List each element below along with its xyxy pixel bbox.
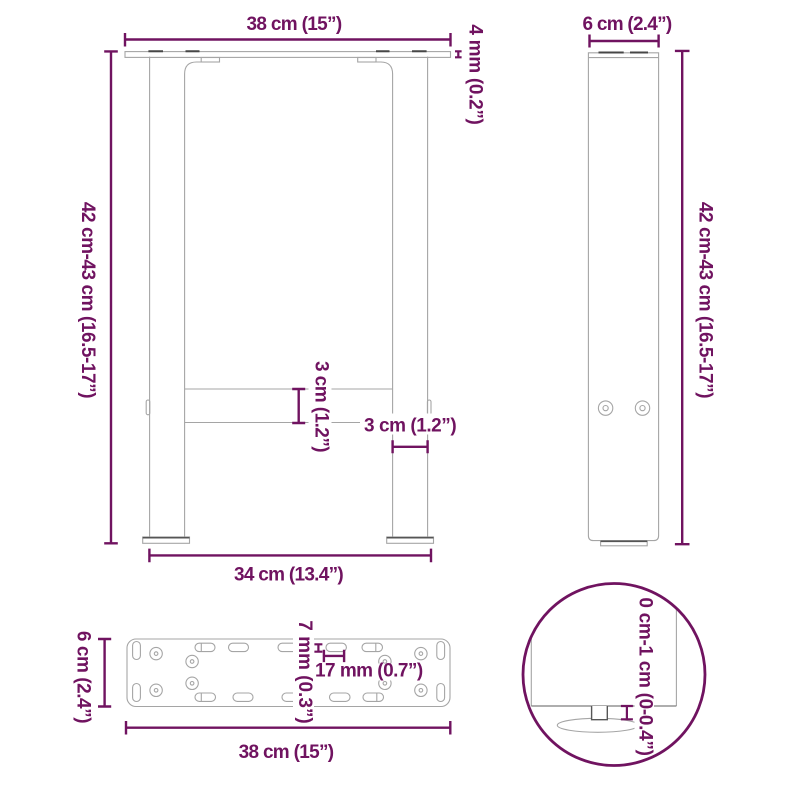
svg-text:34 cm (13.4”): 34 cm (13.4”): [234, 565, 343, 586]
svg-text:42 cm-43 cm (16.5-17”): 42 cm-43 cm (16.5-17”): [77, 202, 98, 398]
svg-text:7 mm (0.3”): 7 mm (0.3”): [294, 620, 315, 723]
svg-text:3 cm (1.2”): 3 cm (1.2”): [364, 416, 456, 437]
svg-text:38 cm (15”): 38 cm (15”): [239, 742, 334, 763]
svg-text:0 cm-1 cm (0-0.4”): 0 cm-1 cm (0-0.4”): [634, 597, 655, 755]
svg-text:17 mm (0.7”): 17 mm (0.7”): [315, 661, 423, 682]
svg-text:6 cm (2.4”): 6 cm (2.4”): [72, 631, 93, 723]
svg-text:38 cm (15”): 38 cm (15”): [246, 14, 341, 35]
svg-text:6 cm (2.4”): 6 cm (2.4”): [583, 14, 672, 35]
svg-text:3 cm (1.2”): 3 cm (1.2”): [310, 361, 331, 452]
svg-text:42 cm-43 cm (16.5-17”): 42 cm-43 cm (16.5-17”): [694, 202, 715, 398]
svg-text:4 mm (0.2”): 4 mm (0.2”): [464, 24, 485, 124]
